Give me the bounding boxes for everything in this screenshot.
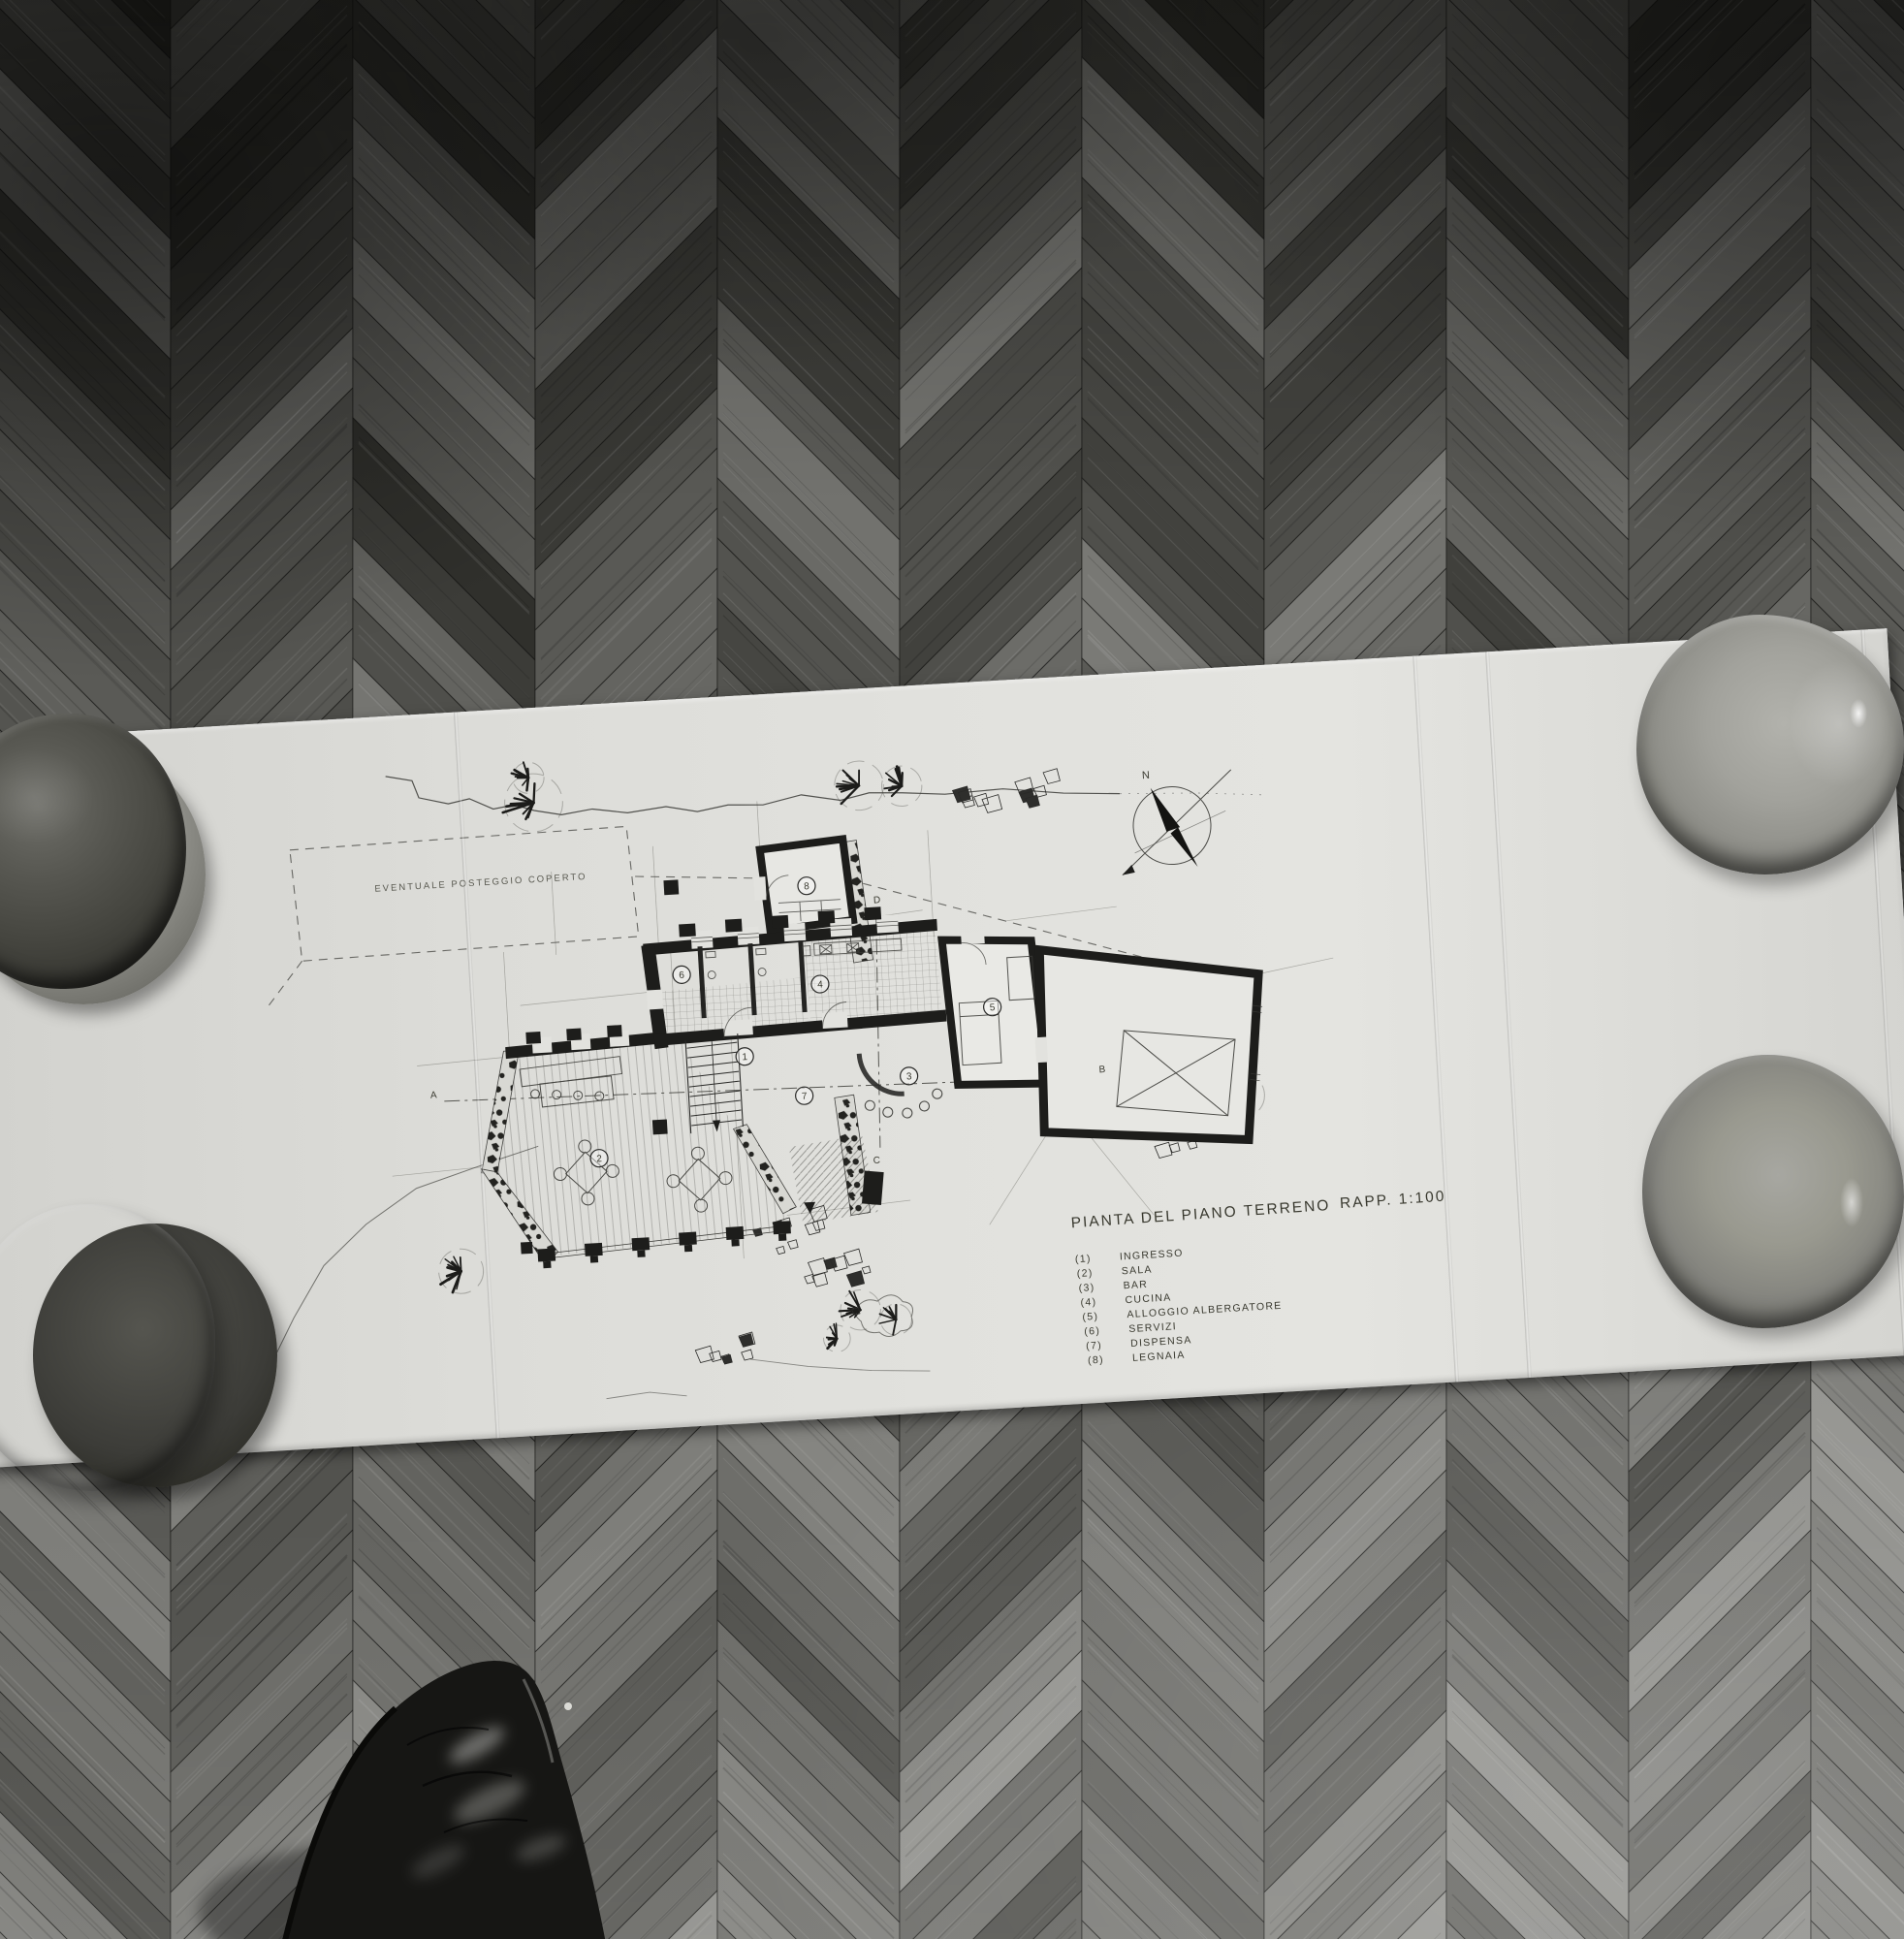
legend-item-num: (2) bbox=[1077, 1267, 1094, 1280]
legend-item-num: (5) bbox=[1082, 1311, 1098, 1323]
plan-title: PIANTA DEL PIANO TERRENO RAPP. 1:100 bbox=[1070, 1189, 1446, 1232]
compass-rose: N bbox=[1117, 765, 1237, 875]
room-number-4: 4 bbox=[817, 979, 824, 990]
plan-title-scale: RAPP. 1:100 bbox=[1339, 1189, 1446, 1213]
legend-item-num: (3) bbox=[1078, 1282, 1095, 1294]
legend-item-num: (4) bbox=[1080, 1296, 1096, 1309]
room-number-8: 8 bbox=[804, 881, 810, 892]
photograph: N EVENTUALE POSTEGGIO COPERTO PIANTA DEL… bbox=[0, 0, 1904, 1939]
legend-item-label: SALA bbox=[1121, 1264, 1153, 1278]
room-number-7: 7 bbox=[802, 1092, 809, 1102]
room-number-2: 2 bbox=[596, 1154, 603, 1164]
legend-item-label: BAR bbox=[1123, 1279, 1148, 1291]
room-number-1: 1 bbox=[742, 1052, 748, 1063]
legend: (1) INGRESSO (2) SALA (3) BAR (4) CUCINA… bbox=[1075, 1242, 1285, 1367]
room-number-6: 6 bbox=[679, 970, 685, 981]
legend-item-num: (8) bbox=[1088, 1354, 1104, 1367]
parking-note: EVENTUALE POSTEGGIO COPERTO bbox=[374, 872, 587, 895]
legend-item-num: (1) bbox=[1075, 1253, 1092, 1265]
legend-item-label: CUCINA bbox=[1125, 1291, 1172, 1306]
drawing-sheet: N EVENTUALE POSTEGGIO COPERTO PIANTA DEL… bbox=[0, 628, 1904, 1475]
legend-item-num: (7) bbox=[1086, 1340, 1102, 1352]
legend-item-label: DISPENSA bbox=[1130, 1334, 1192, 1350]
section-label-c: C bbox=[873, 1156, 880, 1166]
legend-item-label: INGRESSO bbox=[1120, 1248, 1184, 1263]
legend-item-num: (6) bbox=[1084, 1325, 1100, 1338]
section-label-a: A bbox=[430, 1090, 438, 1100]
section-label-b: B bbox=[1098, 1065, 1106, 1075]
room-number-5: 5 bbox=[990, 1002, 997, 1013]
room-number-3: 3 bbox=[906, 1071, 913, 1082]
legend-item-label: LEGNAIA bbox=[1132, 1350, 1186, 1364]
legend-item-label: SERVIZI bbox=[1128, 1320, 1177, 1335]
floor-plan-drawing: N EVENTUALE POSTEGGIO COPERTO PIANTA DEL… bbox=[0, 628, 1904, 1475]
compass-north-label: N bbox=[1142, 770, 1152, 782]
section-label-d: D bbox=[873, 895, 881, 906]
plan-title-main: PIANTA DEL PIANO TERRENO bbox=[1070, 1197, 1331, 1231]
